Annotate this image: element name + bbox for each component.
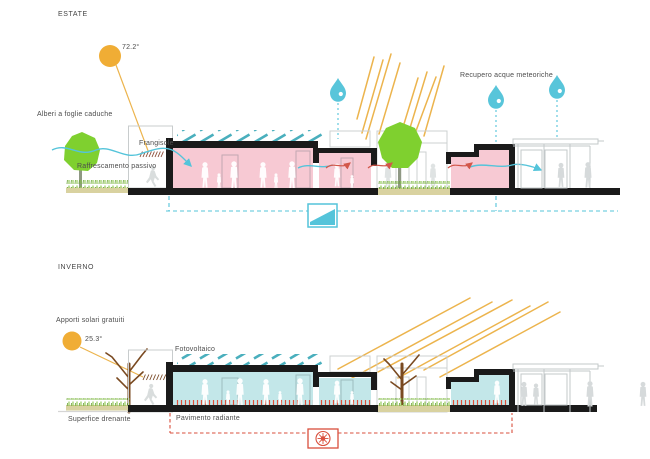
- porch-outline: [129, 126, 173, 188]
- summer-title: ESTATE: [58, 11, 88, 19]
- diagram-canvas: ESTATE 72.2° Alberi a foglie caduche Fra…: [0, 0, 650, 459]
- label-photovoltaic: Fotovoltaico: [175, 346, 215, 354]
- label-passive-cooling: Raffrescamento passivo: [77, 163, 156, 171]
- solar-panels-icon: [177, 130, 323, 141]
- courtyard-tree-icon: [378, 122, 422, 188]
- winter-porch-outline: [129, 350, 173, 412]
- rainwater-circuit: [166, 196, 618, 211]
- label-deciduous-trees: Alberi a foglie caduche: [37, 111, 112, 119]
- winter-courtyard-grass: [378, 398, 450, 412]
- label-radiant-floor: Pavimento radiante: [176, 415, 240, 423]
- label-brise-soleil: Frangisole: [139, 140, 174, 148]
- label-free-solar-gains: Apporti solari gratuiti: [56, 317, 124, 325]
- winter-section: [58, 298, 646, 448]
- deciduous-tree-icon: [64, 132, 100, 188]
- summer-sun-angle: 72.2°: [122, 44, 139, 52]
- water-tank-icon: [308, 204, 337, 227]
- section-drawings: [0, 0, 650, 459]
- annex-pavilion: [513, 139, 604, 188]
- winter-annex-pavilion: [513, 364, 646, 412]
- winter-solar-panels-icon: [177, 354, 323, 365]
- label-rainwater-recovery: Recupero acque meteoriche: [460, 72, 553, 80]
- summer-sun-icon: [99, 45, 149, 152]
- courtyard-grass: [378, 181, 450, 195]
- winter-title: INVERNO: [58, 264, 94, 272]
- winter-brise-soleil-hatch: [143, 375, 166, 381]
- label-draining-surface: Superfice drenante: [68, 416, 131, 424]
- heat-pump-icon: [308, 429, 338, 448]
- grass-strip: [66, 180, 128, 193]
- radiant-floor-hatch: [175, 400, 508, 405]
- winter-sun-angle: 25.3°: [85, 336, 102, 344]
